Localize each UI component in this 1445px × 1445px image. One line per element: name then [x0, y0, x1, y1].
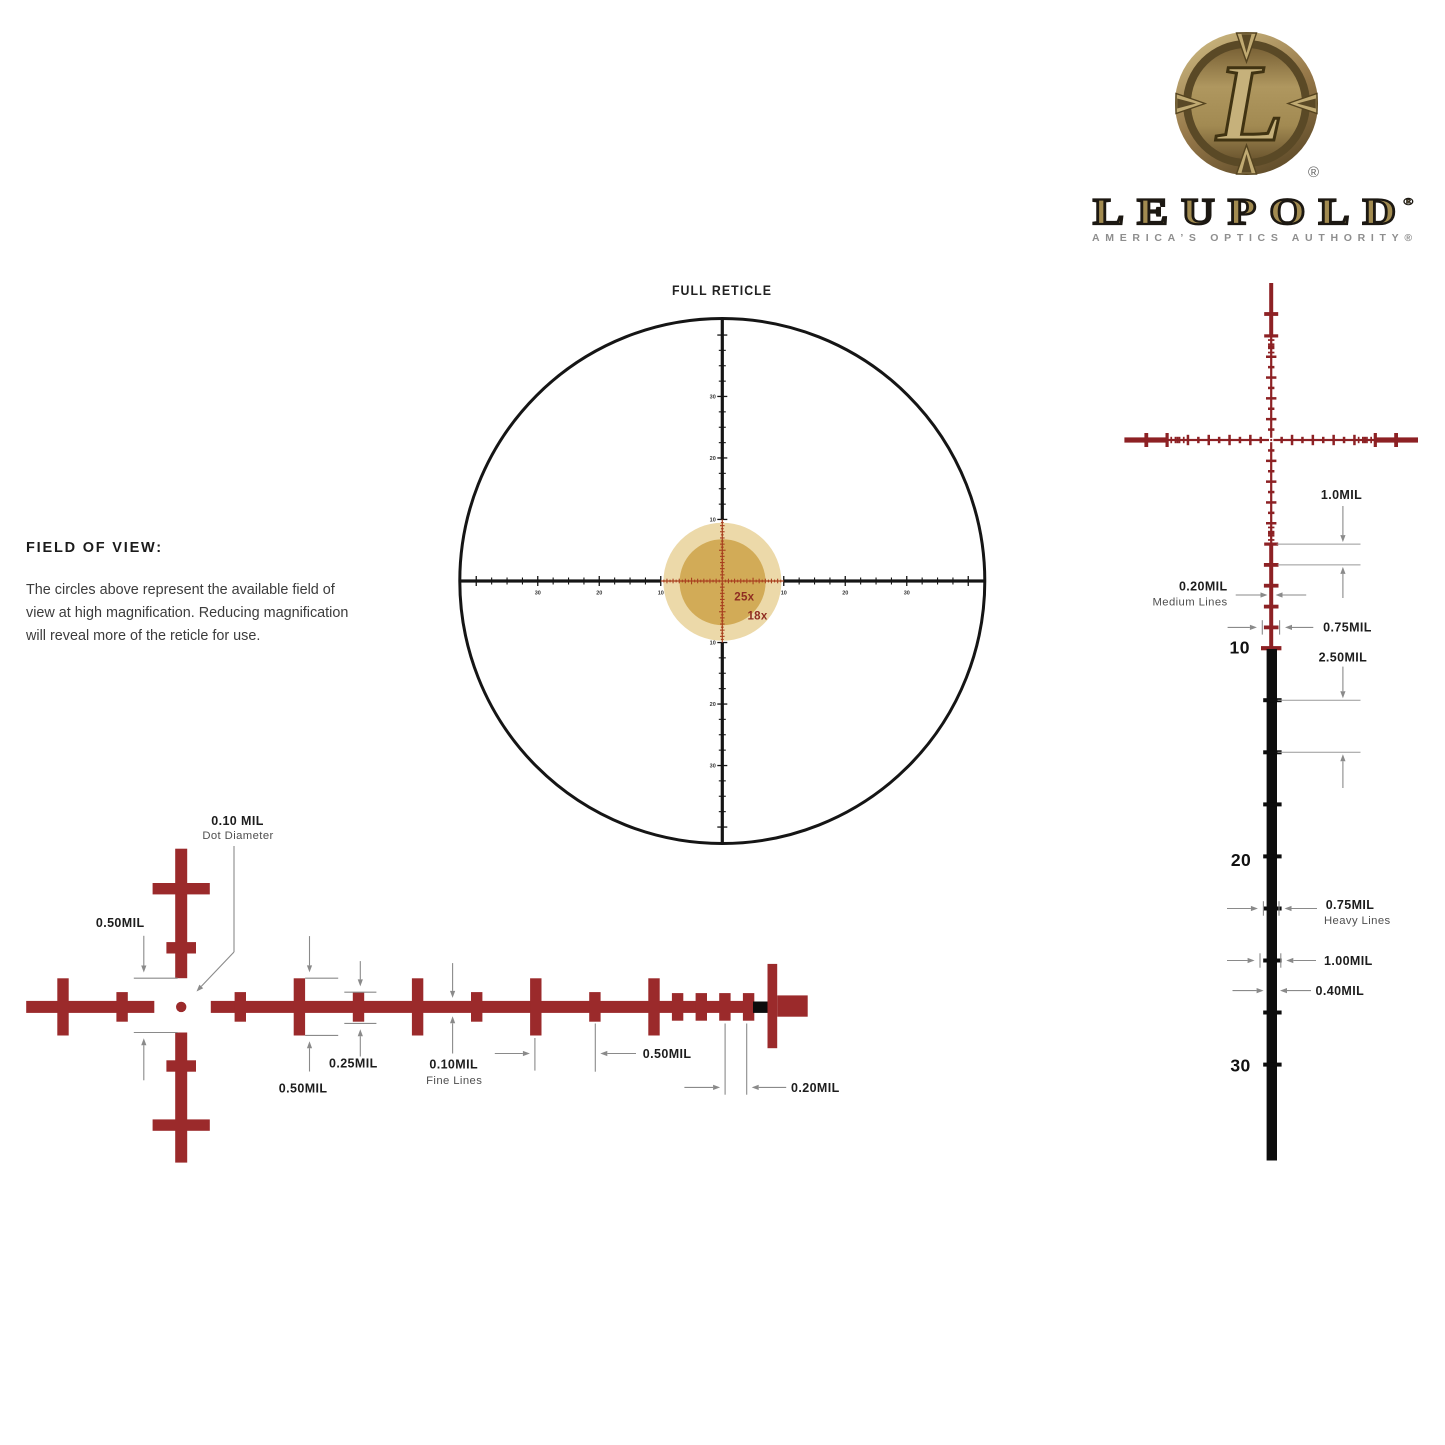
svg-text:20: 20	[596, 591, 602, 597]
svg-text:0.20MIL: 0.20MIL	[791, 1081, 840, 1095]
svg-text:25x: 25x	[734, 592, 754, 604]
svg-text:L: L	[1215, 42, 1283, 164]
svg-text:0.75MIL: 0.75MIL	[1326, 898, 1375, 912]
svg-text:20: 20	[842, 591, 848, 597]
svg-text:10: 10	[710, 518, 716, 524]
svg-text:1.0MIL: 1.0MIL	[1321, 488, 1362, 502]
svg-text:30: 30	[535, 591, 541, 597]
svg-text:0.50MIL: 0.50MIL	[643, 1047, 692, 1061]
svg-text:Fine Lines: Fine Lines	[426, 1075, 482, 1087]
svg-text:10: 10	[710, 641, 716, 647]
svg-text:18x: 18x	[747, 611, 767, 623]
svg-text:20: 20	[710, 702, 716, 708]
svg-text:10: 10	[781, 591, 787, 597]
svg-text:30: 30	[710, 764, 716, 770]
svg-text:0.10MIL: 0.10MIL	[429, 1058, 478, 1072]
svg-text:10: 10	[1230, 637, 1250, 657]
svg-text:1.00MIL: 1.00MIL	[1324, 954, 1373, 968]
svg-text:0.20MIL: 0.20MIL	[1179, 580, 1228, 594]
svg-text:0.75MIL: 0.75MIL	[1323, 621, 1372, 635]
svg-text:20: 20	[710, 456, 716, 462]
svg-text:30: 30	[1230, 1055, 1250, 1075]
svg-text:0.10 MIL: 0.10 MIL	[211, 814, 264, 828]
svg-text:Medium Lines: Medium Lines	[1152, 597, 1227, 609]
svg-text:20: 20	[1231, 850, 1251, 870]
svg-text:2.50MIL: 2.50MIL	[1319, 651, 1368, 665]
svg-text:0.50MIL: 0.50MIL	[279, 1082, 328, 1096]
svg-text:Heavy Lines: Heavy Lines	[1324, 915, 1391, 927]
svg-text:0.50MIL: 0.50MIL	[96, 916, 145, 930]
svg-text:30: 30	[710, 395, 716, 401]
svg-text:10: 10	[658, 591, 664, 597]
svg-text:0.25MIL: 0.25MIL	[329, 1057, 378, 1071]
svg-text:Dot Diameter: Dot Diameter	[202, 830, 273, 842]
svg-text:30: 30	[904, 591, 910, 597]
svg-text:0.40MIL: 0.40MIL	[1316, 984, 1365, 998]
